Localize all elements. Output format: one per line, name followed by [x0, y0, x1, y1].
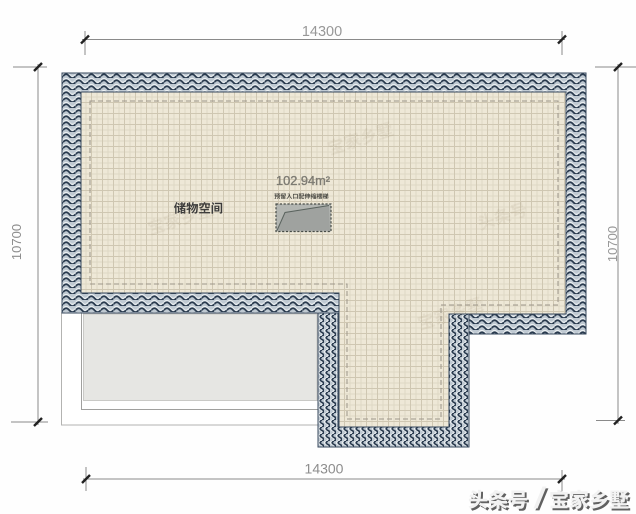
svg-text:10700: 10700 [605, 226, 620, 262]
svg-text:14300: 14300 [305, 461, 344, 477]
svg-text:14300: 14300 [302, 24, 342, 40]
svg-text:10700: 10700 [9, 224, 24, 260]
svg-text:102.94m²: 102.94m² [276, 173, 331, 188]
